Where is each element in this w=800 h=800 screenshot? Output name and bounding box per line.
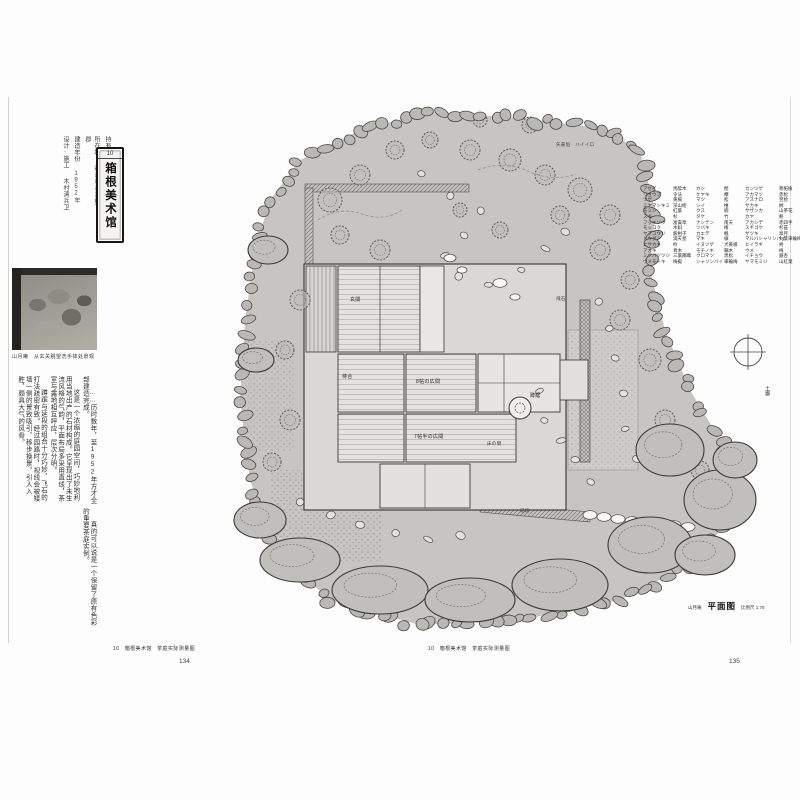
compass-mark [730,334,766,370]
label-fence: 矢来垣 ハイイロ [556,142,594,148]
body-paragraph: ……历时数年，至1952年方才全部建造完成。 [81,376,96,504]
label-tobiishi: 飛石 [556,296,566,302]
body-paragraph: 这是一个浓缩的庭园空间，巧妙地利用当地出产的石材构成。它呈现出了未生流风格的气韵… [48,376,78,504]
label-8mat-room: 8帖の広間 [416,378,440,385]
photo-caption: 山月庵 从玄关眺望洗手钵处景观 [12,353,95,360]
teahouse-photo [12,268,97,350]
chapter-title-box: 10 箱根美术馆 [96,147,124,243]
legend-entry: 車輪梅 [724,259,745,265]
label-7mat-room: 7帖半の広間 [414,433,444,440]
engawa [306,266,336,352]
meta-item: 建造年份1952年 [71,136,80,214]
right-page-edge [790,97,791,643]
body-text-band-2: 真的可以说是一个保留了原有色彩的重要茶庭实例。 [26,508,98,632]
label-genkan: 玄関 [350,296,361,303]
legend-entry: シャリンバイ [696,259,724,265]
porch [560,360,588,400]
garden-site-plan [228,100,778,645]
meta-value: 木村清兵卫 [62,178,68,211]
legend-entry: 山紅葉 [779,259,800,265]
right-folio: 135 [729,658,740,665]
body-text-band-1: ……历时数年，至1952年方才全部建造完成。这是一个浓缩的庭园空间，巧妙地利用当… [26,376,98,504]
legend-entry: 梅擬 [673,259,696,265]
teahouse-building [304,264,588,510]
left-folio: 134 [179,658,190,665]
corridor [420,266,444,352]
legend-entry: ウメモドキ [643,259,673,265]
fence-left [305,188,313,268]
meta-value: 1952年 [73,171,79,204]
museum-title: 箱根美术馆 [102,162,118,230]
right-page-caption: 10 箱根美术馆 茶庭实际测量图 [428,645,510,652]
meta-item: 设计·施工木村清兵卫 [60,136,69,214]
plan-title-block: 山月庵平面图比例尺 1:75 [688,596,765,614]
left-page-caption: 10 箱根美术馆 茶庭实际测量图 [113,645,195,652]
label-tsukubai: 蹲踞 [530,392,541,399]
chapter-number: 10 [98,149,122,159]
plan-title: 平面图 [708,601,737,611]
book-spread: { "book": { "left_caption": "10 箱根美术馆 茶庭… [0,0,800,800]
left-page-edge [8,97,9,643]
meta-label: 建造年份 [73,136,79,162]
label-earthen-wall: 土塀 [764,386,771,397]
label-nobedan: 延段 [520,508,530,514]
plan-subname: 山月庵 [688,605,702,610]
plan-scale: 比例尺 1:75 [741,605,765,610]
body-paragraph: 真的可以说是一个保留了原有色彩的重要茶庭实例。 [81,508,96,632]
plant-legend: アセビ馬酔木カシ樫カンツゲ寒柘植リョウブ令法ケヤキ欅アカマツ赤松ツゲ黄楊マツ松ア… [643,186,800,264]
tsukubai-basin [509,397,531,419]
legend-entry: ヤマモミジ [745,259,779,265]
label-tokonoma: 床の間 [487,441,501,447]
label-machiai: 待合 [342,373,353,380]
body-paragraph: 蹲踞与延段的组合十分巧妙，飞石的打法疏密有致。经过园路时，视线会被矮墙一侧的景致… [16,376,46,504]
meta-label: 设计·施工 [62,136,68,169]
